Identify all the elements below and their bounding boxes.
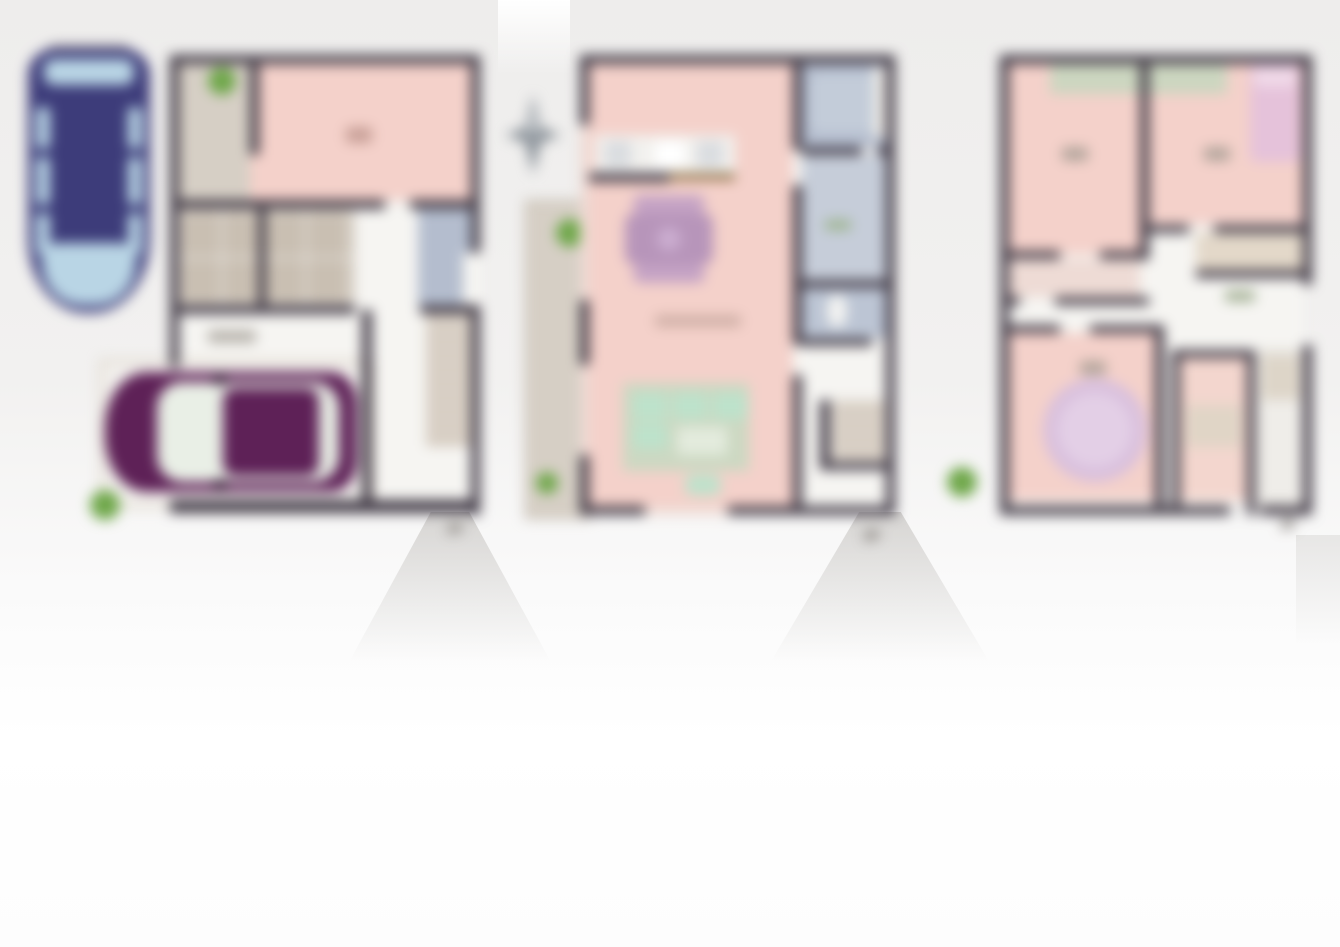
room-label-mark: [1225, 290, 1255, 302]
room-label-mark: [346, 127, 372, 143]
wall-segment: [362, 310, 372, 510]
porch-label-mark: [208, 330, 256, 343]
wall-segment: [1140, 55, 1149, 260]
minivan-side-window: [36, 107, 50, 149]
sedan-top-view: [105, 372, 357, 492]
wall-segment: [1000, 251, 1060, 259]
wall-segment: [250, 55, 259, 155]
wall-segment: [1247, 350, 1255, 515]
wall-segment: [877, 147, 895, 155]
closet-under-bedroom2: [1196, 233, 1303, 270]
wall-segment: [1303, 55, 1312, 285]
washroom-2f: [802, 155, 886, 280]
room-label-mark: [1080, 361, 1106, 375]
stairs-1f: [426, 313, 471, 448]
wall-segment: [820, 400, 830, 470]
wall-opening: [645, 506, 728, 515]
stairs-2f: [833, 400, 885, 462]
sedan-mirror: [213, 480, 227, 490]
sofa-cushion: [673, 393, 707, 419]
ottoman: [685, 475, 721, 495]
wall-segment: [1172, 350, 1180, 515]
kitchen-stove: [605, 141, 631, 167]
kitchen-sink: [655, 141, 685, 167]
wall-segment: [420, 305, 480, 314]
wall-segment: [820, 462, 887, 470]
closet-2f: [873, 67, 886, 137]
storage-room-1f: [179, 209, 354, 305]
floor-tag-2f: 2F: [864, 527, 880, 543]
wall-segment: [170, 200, 385, 209]
room-label-mark: [1204, 147, 1230, 161]
balcony-mat: [1262, 355, 1300, 400]
bathtub: [810, 73, 878, 133]
wall-segment: [728, 506, 895, 515]
wall-segment: [793, 55, 802, 150]
wall-segment: [589, 173, 669, 182]
wall-segment: [802, 280, 895, 288]
wall-opening: [463, 253, 480, 313]
dining-chairs: [633, 265, 705, 283]
sofa-cushion: [633, 423, 667, 449]
wall-segment: [580, 55, 589, 125]
wall-segment: [1000, 297, 1020, 305]
shrub-icon: [947, 467, 977, 497]
wall-segment: [1172, 350, 1252, 358]
closet-3f: [1149, 64, 1227, 94]
kitchen-appliance: [697, 141, 723, 167]
minivan-rear-window: [44, 59, 134, 85]
coffee-table: [677, 427, 727, 455]
floorplan-3f: [1000, 55, 1312, 515]
balcony-door: [580, 125, 589, 300]
wall-segment: [802, 147, 862, 155]
closet-under-bedroom1: [1009, 259, 1140, 297]
sofa-cushion: [713, 393, 747, 419]
wall-segment: [1000, 325, 1060, 333]
wall-segment: [1090, 325, 1160, 333]
minivan-side-window: [128, 157, 142, 205]
wall-segment: [258, 209, 266, 309]
wall-segment: [1155, 325, 1164, 515]
wall-segment: [1260, 506, 1312, 515]
shrub-icon: [536, 472, 558, 494]
sedan-roof: [223, 388, 319, 476]
minivan-top-view: [28, 45, 150, 313]
sedan-mirror: [213, 374, 227, 384]
floorplan-screenshot: 1F 2F 3F: [0, 0, 1340, 947]
bed-pillow: [1254, 67, 1296, 87]
wall-segment: [1196, 270, 1303, 278]
wall-segment: [1000, 506, 1230, 515]
wall-segment: [793, 375, 802, 515]
wall-segment: [1149, 225, 1189, 233]
wall-segment: [1055, 297, 1149, 305]
minivan-side-window: [36, 157, 50, 205]
balcony-door: [580, 365, 589, 455]
minivan-side-window: [128, 107, 142, 149]
wall-segment: [580, 506, 645, 515]
floorplan-2f: [525, 55, 895, 515]
wall-segment: [1000, 55, 1009, 515]
wall-segment: [1000, 55, 1312, 64]
wall-segment: [580, 300, 589, 365]
wall-segment: [580, 55, 895, 64]
wall-segment: [802, 338, 872, 346]
sofa-cushion: [633, 393, 667, 419]
blurred-plan-layer: 1F 2F 3F: [0, 0, 1340, 947]
wall-segment: [793, 185, 802, 345]
floor-tag-3f: 3F: [1280, 516, 1296, 532]
toilet: [827, 295, 847, 327]
wall-segment: [170, 55, 179, 367]
shrub-icon: [208, 67, 236, 95]
shrub-icon: [90, 490, 120, 520]
wall-segment: [1303, 345, 1312, 515]
wall-segment: [170, 55, 480, 64]
wall-segment: [1214, 225, 1312, 233]
closet-3f: [1050, 64, 1140, 94]
wall-segment: [1100, 251, 1149, 259]
wall-segment: [410, 200, 480, 209]
floor-tag-1f: 1F: [447, 520, 463, 536]
table-centerpiece: [657, 227, 681, 251]
room-label-mark: [1062, 147, 1088, 161]
round-rug-inner: [1058, 393, 1132, 467]
room-label-mark: [825, 220, 851, 230]
room-label-mark: [655, 315, 741, 327]
dining-chairs: [633, 195, 705, 213]
wall-segment: [170, 500, 480, 513]
closet-shelf: [1186, 405, 1241, 447]
